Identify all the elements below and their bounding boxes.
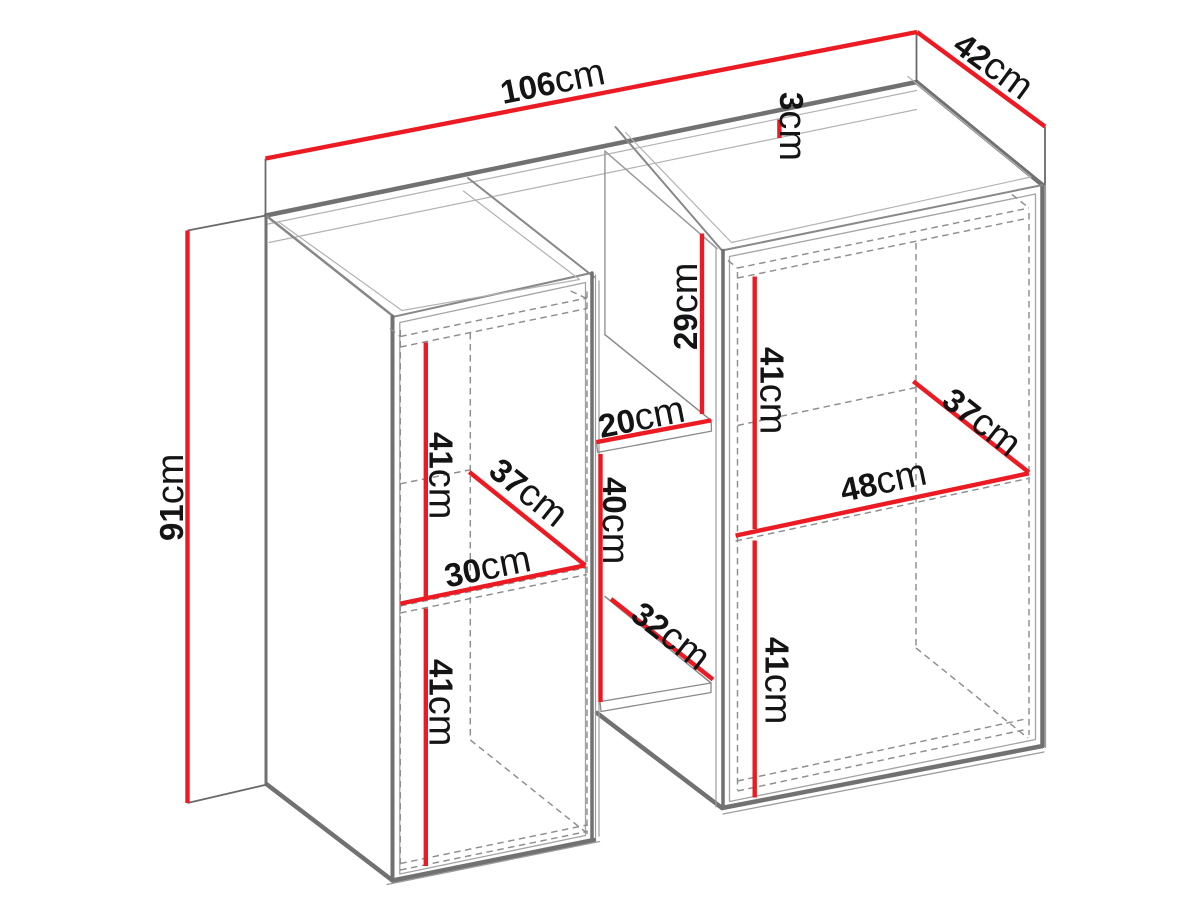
svg-text:41cm: 41cm <box>757 637 799 724</box>
svg-text:41cm: 41cm <box>421 659 463 746</box>
svg-text:91cm: 91cm <box>150 454 192 541</box>
svg-text:29cm: 29cm <box>664 263 706 350</box>
svg-text:3cm: 3cm <box>771 92 813 161</box>
svg-text:41cm: 41cm <box>752 347 794 434</box>
svg-text:40cm: 40cm <box>594 477 636 564</box>
svg-text:41cm: 41cm <box>421 432 463 519</box>
